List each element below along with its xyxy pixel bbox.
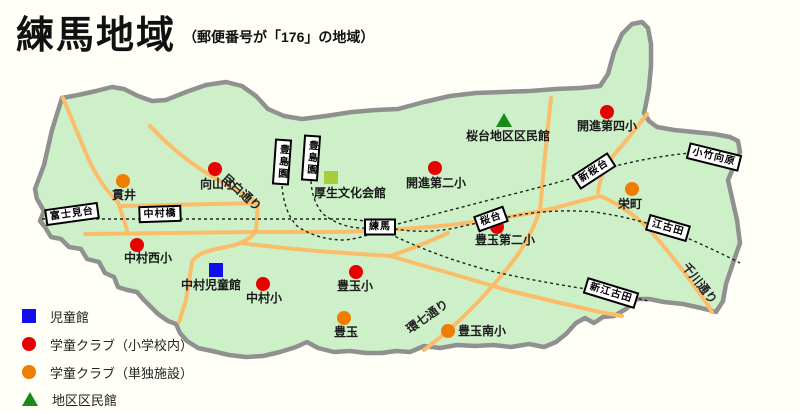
marker-sakaemachi (625, 182, 639, 196)
orange-circle-icon (22, 365, 36, 379)
legend-item-jidokan: 児童館 (22, 306, 89, 326)
marker-toyotama (337, 311, 351, 325)
label-toyotama: 豊玉 (334, 326, 358, 339)
marker-toyotama-sho (349, 265, 363, 279)
station-toshimaen-oedo: 豊島園 (301, 134, 321, 181)
legend-item-gakudo-school: 学童クラブ（小学校内） (22, 334, 193, 354)
marker-mukaiyama-sho (208, 162, 222, 176)
marker-kosei-bunka-kaikan (324, 171, 338, 184)
label-sakuradai-kuminkan: 桜台地区区民館 (466, 130, 550, 143)
label-nakamura-nishi-sho: 中村西小 (124, 252, 172, 265)
label-nukui: 貫井 (112, 189, 136, 202)
label-toyotama-sho: 豊玉小 (337, 280, 373, 293)
marker-nakamura-jidokan (209, 263, 223, 277)
legend-label-kuminkan: 地区区民館 (52, 390, 117, 409)
blue-square-icon (22, 309, 36, 323)
green-triangle-icon (22, 392, 38, 406)
legend-label-gakudo-school: 学童クラブ（小学校内） (50, 335, 193, 354)
label-kaishin-daini-sho: 開進第二小 (406, 177, 466, 190)
label-sakaemachi: 栄町 (618, 198, 642, 211)
label-kaishin-daiyon-sho: 開進第四小 (577, 120, 637, 133)
label-kosei-bunka-kaikan: 厚生文化会館 (314, 187, 386, 200)
station-toshimaen-seibu: 豊島園 (272, 138, 292, 185)
red-circle-icon (22, 337, 36, 351)
legend-label-gakudo-standalone: 学童クラブ（単独施設） (50, 363, 193, 382)
marker-nukui (116, 174, 130, 188)
label-nakamura-sho: 中村小 (246, 292, 282, 305)
page-title: 練馬地域 (16, 4, 176, 59)
marker-nakamura-nishi-sho (130, 238, 144, 252)
label-nakamura-jidokan: 中村児童館 (181, 279, 241, 292)
marker-kaishin-daiyon-sho (600, 105, 614, 119)
legend-label-jidokan: 児童館 (50, 307, 89, 326)
marker-kaishin-daini-sho (428, 161, 442, 175)
marker-sakuradai-kuminkan (496, 113, 512, 127)
station-nerima: 練馬 (364, 219, 396, 236)
label-toyotama-minami-sho: 豊玉南小 (458, 325, 506, 338)
label-toyotama-daini-sho: 豊玉第二小 (475, 234, 535, 247)
legend-item-kuminkan: 地区区民館 (22, 389, 117, 409)
marker-toyotama-minami-sho (441, 324, 455, 338)
page-subtitle: （郵便番号が「176」の地域） (183, 27, 374, 47)
marker-nakamura-sho (256, 277, 270, 291)
station-nakamurabashi: 中村橋 (138, 205, 182, 223)
legend-item-gakudo-standalone: 学童クラブ（単独施設） (22, 362, 193, 382)
